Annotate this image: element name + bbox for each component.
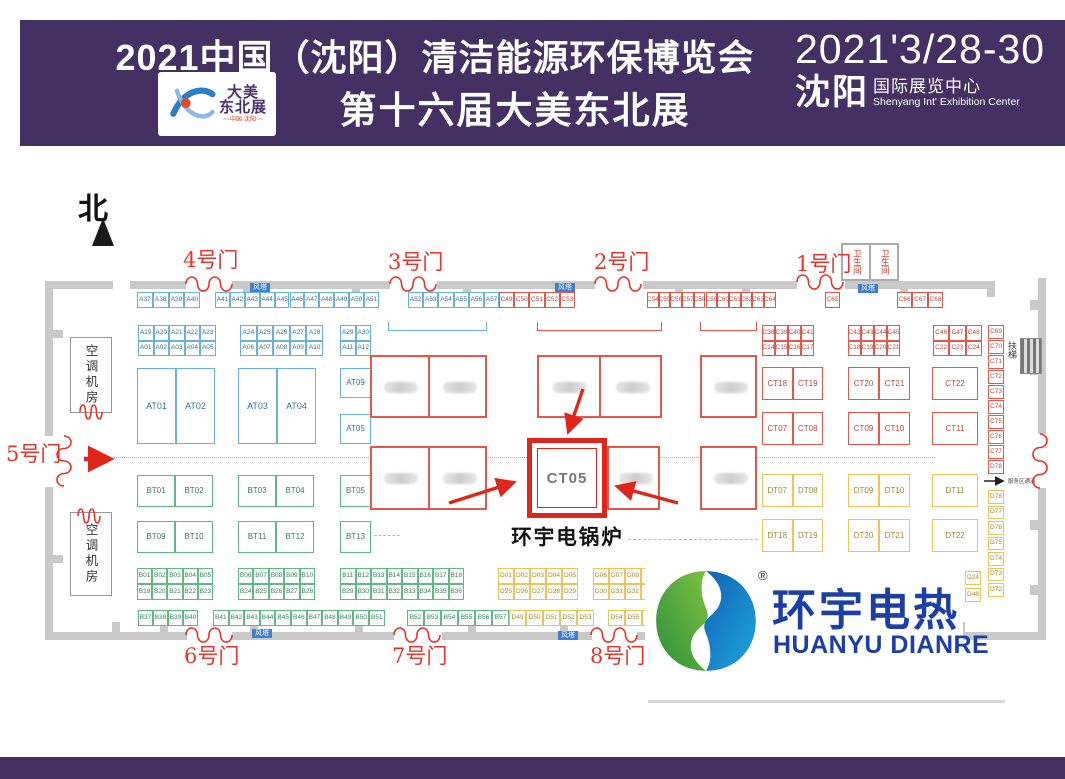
booth-CT11[interactable]: CT11 xyxy=(932,412,978,445)
booth-C19[interactable]: C19 xyxy=(861,341,874,357)
booth-D30[interactable]: D30 xyxy=(593,584,609,600)
booth-C55[interactable]: C55 xyxy=(659,292,671,308)
booth-A43[interactable]: A43 xyxy=(245,292,260,308)
booth-C70[interactable]: C70 xyxy=(988,340,1004,354)
booth-B27[interactable]: B27 xyxy=(284,584,299,600)
booth-A50[interactable]: A50 xyxy=(349,292,364,308)
booth-DT07[interactable]: DT07 xyxy=(762,474,793,507)
booth-B47[interactable]: B47 xyxy=(307,610,323,626)
door-symbol xyxy=(797,274,843,290)
booth-A46[interactable]: A46 xyxy=(290,292,305,308)
booth-D04[interactable]: D04 xyxy=(546,568,562,584)
door-symbol xyxy=(186,627,232,643)
booth-BT01[interactable]: BT01 xyxy=(137,475,175,507)
booth-C50[interactable]: C50 xyxy=(514,292,529,308)
wall xyxy=(130,281,186,289)
door-symbol xyxy=(186,276,232,292)
booth-B13[interactable]: B13 xyxy=(371,568,387,584)
booth-D06[interactable]: D06 xyxy=(593,568,609,584)
booth-DT19[interactable]: DT19 xyxy=(793,519,824,552)
booth-D78[interactable]: D78 xyxy=(988,490,1004,504)
booth-A19[interactable]: A19 xyxy=(138,325,154,341)
booth-CT18[interactable]: CT18 xyxy=(762,367,793,400)
blurred-booth-name xyxy=(714,473,748,484)
booth-D08[interactable]: D08 xyxy=(625,568,641,584)
booth-B34[interactable]: B34 xyxy=(418,584,434,600)
booth-DT11[interactable]: DT11 xyxy=(932,474,978,507)
wall xyxy=(45,281,53,436)
booth-B49[interactable]: B49 xyxy=(338,610,354,626)
booth-C62[interactable]: C62 xyxy=(741,292,753,308)
booth-C18[interactable]: C18 xyxy=(848,341,861,357)
booth-BT13[interactable]: BT13 xyxy=(340,521,371,553)
north-arrow-icon xyxy=(92,218,114,246)
booth-D51[interactable]: D51 xyxy=(543,610,560,626)
booth-A23[interactable]: A23 xyxy=(200,325,216,341)
door-symbol xyxy=(390,276,436,292)
wall xyxy=(987,281,995,297)
booth-B09[interactable]: B09 xyxy=(284,568,299,584)
registered-mark: ® xyxy=(758,568,768,583)
dashed-mark xyxy=(628,539,758,540)
booth-CT21[interactable]: CT21 xyxy=(879,367,910,400)
booth-B22[interactable]: B22 xyxy=(183,584,198,600)
booth-C65[interactable]: C65 xyxy=(825,292,840,308)
booth-AT09[interactable]: AT09 xyxy=(340,368,371,398)
dashed-mark xyxy=(374,535,400,536)
booth-C75[interactable]: C75 xyxy=(988,415,1004,429)
booth-block-censored xyxy=(607,446,660,510)
booth-C17[interactable]: C17 xyxy=(801,341,814,357)
booth-BT04[interactable]: BT04 xyxy=(276,475,314,507)
booth-C64[interactable]: C64 xyxy=(764,292,776,308)
booth-C24[interactable]: C24 xyxy=(966,341,982,357)
blurred-booth-name xyxy=(443,382,477,393)
booth-AT04[interactable]: AT04 xyxy=(277,368,316,444)
booth-BT09[interactable]: BT09 xyxy=(137,521,175,553)
booth-CT20[interactable]: CT20 xyxy=(848,367,879,400)
booth-CT19[interactable]: CT19 xyxy=(793,367,824,400)
door-symbol xyxy=(591,627,637,643)
booth-A57[interactable]: A57 xyxy=(484,292,499,308)
booth-B04[interactable]: B04 xyxy=(183,568,198,584)
blurred-booth-name xyxy=(616,382,650,393)
booth-C42[interactable]: C42 xyxy=(848,325,861,341)
blurred-booth-name xyxy=(553,382,587,393)
booth-D55[interactable]: D55 xyxy=(625,610,642,626)
door-label: 3号门 xyxy=(388,252,443,273)
booth-C72[interactable]: C72 xyxy=(988,370,1004,384)
door-label: 2号门 xyxy=(594,252,649,273)
booth-C47[interactable]: C47 xyxy=(949,325,965,341)
highlight-caption: 环宇电锅炉 xyxy=(500,520,635,550)
booth-C71[interactable]: C71 xyxy=(988,355,1004,369)
booth-B38[interactable]: B38 xyxy=(153,610,168,626)
booth-D27[interactable]: D27 xyxy=(530,584,546,600)
booth-A53[interactable]: A53 xyxy=(423,292,438,308)
booth-BT10[interactable]: BT10 xyxy=(175,521,213,553)
booth-A49[interactable]: A49 xyxy=(334,292,349,308)
brand-name-cn: 环宇电热 xyxy=(772,574,960,638)
booth-B33[interactable]: B33 xyxy=(402,584,418,600)
door-symbol xyxy=(394,627,440,643)
booth-D74[interactable]: D74 xyxy=(988,552,1004,566)
booth-A37[interactable]: A37 xyxy=(137,292,153,308)
booth-A02[interactable]: A02 xyxy=(154,341,170,357)
booth-C23[interactable]: C23 xyxy=(949,341,965,357)
booth-A52[interactable]: A52 xyxy=(408,292,423,308)
booth-D29[interactable]: D29 xyxy=(562,584,578,600)
blurred-booth-name xyxy=(384,473,418,484)
booth-B40[interactable]: B40 xyxy=(183,610,198,626)
booth-A29[interactable]: A29 xyxy=(340,325,356,341)
booth-DT08[interactable]: DT08 xyxy=(793,474,824,507)
booth-A44[interactable]: A44 xyxy=(260,292,275,308)
booth-A10[interactable]: A10 xyxy=(306,341,323,357)
blurred-booth-name xyxy=(714,382,748,393)
booth-C77[interactable]: C77 xyxy=(988,445,1004,459)
booth-C67[interactable]: C67 xyxy=(912,292,927,308)
aisle-dotted-line xyxy=(113,457,935,458)
booth-C49[interactable]: C49 xyxy=(499,292,514,308)
booth-B17[interactable]: B17 xyxy=(433,568,449,584)
booth-B54[interactable]: B54 xyxy=(441,610,458,626)
booth-B36[interactable]: B36 xyxy=(449,584,465,600)
booth-C63[interactable]: C63 xyxy=(752,292,764,308)
booth-AT05[interactable]: AT05 xyxy=(340,414,371,444)
wall xyxy=(45,281,113,289)
door-label: 4号门 xyxy=(183,250,238,271)
booth-C52[interactable]: C52 xyxy=(545,292,560,308)
booth-C54[interactable]: C54 xyxy=(647,292,659,308)
booth-B18[interactable]: B18 xyxy=(449,568,465,584)
booth-block-censored xyxy=(700,355,757,418)
booth-DT10[interactable]: DT10 xyxy=(879,474,910,507)
booth-D02[interactable]: D02 xyxy=(514,568,530,584)
page: 2021中国（沈阳）清洁能源环保博览会 大美 东北展 ~~中国·沈阳~~ 第十六… xyxy=(0,0,1065,779)
booth-C43[interactable]: C43 xyxy=(861,325,874,341)
booth-B19[interactable]: B19 xyxy=(137,584,152,600)
door-label: 5号门 xyxy=(6,444,61,465)
booth-D77[interactable]: D77 xyxy=(988,506,1004,520)
booth-C58[interactable]: C58 xyxy=(694,292,706,308)
highlighted-booth-ct05[interactable]: CT05 xyxy=(527,438,607,518)
door-symbol xyxy=(595,276,641,292)
booth-BT12[interactable]: BT12 xyxy=(276,521,314,553)
booth-B03[interactable]: B03 xyxy=(167,568,182,584)
booth-A28[interactable]: A28 xyxy=(306,325,323,341)
booth-B23[interactable]: B23 xyxy=(198,584,213,600)
booth-C73[interactable]: C73 xyxy=(988,385,1004,399)
door-label: 8号门 xyxy=(590,646,645,667)
booth-D52[interactable]: D52 xyxy=(560,610,577,626)
wind-tower-badge: 风塔 xyxy=(558,631,578,640)
booth-A38[interactable]: A38 xyxy=(153,292,169,308)
booth-BT03[interactable]: BT03 xyxy=(238,475,276,507)
booth-DT22[interactable]: DT22 xyxy=(932,519,978,552)
escalator-icon xyxy=(1020,338,1042,374)
booth-B06[interactable]: B06 xyxy=(238,568,253,584)
door-label: 6号门 xyxy=(184,646,239,667)
booth-C66[interactable]: C66 xyxy=(897,292,912,308)
booth-A39[interactable]: A39 xyxy=(169,292,185,308)
booth-D49[interactable]: D49 xyxy=(509,610,526,626)
wall-stub xyxy=(112,622,120,632)
booth-A41[interactable]: A41 xyxy=(215,292,230,308)
booth-B43[interactable]: B43 xyxy=(244,610,260,626)
booth-A03[interactable]: A03 xyxy=(169,341,185,357)
wall xyxy=(643,281,797,289)
booth-C15[interactable]: C15 xyxy=(775,341,788,357)
ac-room-lower: 空调机房 xyxy=(70,512,112,596)
booth-CT08[interactable]: CT08 xyxy=(793,412,824,445)
booth-B30[interactable]: B30 xyxy=(356,584,372,600)
booth-A42[interactable]: A42 xyxy=(230,292,245,308)
booth-C21[interactable]: C21 xyxy=(887,341,900,357)
booth-A47[interactable]: A47 xyxy=(304,292,319,308)
wall xyxy=(45,632,187,640)
booth-B32[interactable]: B32 xyxy=(387,584,403,600)
booth-C48[interactable]: C48 xyxy=(966,325,982,341)
booth-D31[interactable]: D31 xyxy=(609,584,625,600)
booth-block-censored xyxy=(370,446,487,510)
booth-B14[interactable]: B14 xyxy=(387,568,403,584)
booth-A09[interactable]: A09 xyxy=(290,341,307,357)
booth-C76[interactable]: C76 xyxy=(988,430,1004,444)
booth-D03[interactable]: D03 xyxy=(530,568,546,584)
booth-C40[interactable]: C40 xyxy=(788,325,801,341)
booth-CT09[interactable]: CT09 xyxy=(848,412,879,445)
ac-room-upper: 空调机房 xyxy=(70,337,112,413)
booth-A04[interactable]: A04 xyxy=(185,341,201,357)
toilet-room: 卫生间 xyxy=(869,243,899,281)
booth-A07[interactable]: A07 xyxy=(257,341,274,357)
booth-B35[interactable]: B35 xyxy=(433,584,449,600)
booth-B05[interactable]: B05 xyxy=(198,568,213,584)
booth-B37[interactable]: B37 xyxy=(138,610,153,626)
booth-block-censored xyxy=(537,355,662,418)
booth-D07[interactable]: D07 xyxy=(609,568,625,584)
booth-BT11[interactable]: BT11 xyxy=(238,521,276,553)
highlighted-booth-label: CT05 xyxy=(537,448,597,508)
booth-DT09[interactable]: DT09 xyxy=(848,474,879,507)
wall xyxy=(45,487,53,633)
ac-room-label: 空调机房 xyxy=(82,344,101,406)
booth-D73[interactable]: D73 xyxy=(988,568,1004,582)
door-label: 1号门 xyxy=(796,254,851,275)
booth-C57[interactable]: C57 xyxy=(682,292,694,308)
booth-A51[interactable]: A51 xyxy=(364,292,379,308)
booth-B01[interactable]: B01 xyxy=(137,568,152,584)
booth-D54[interactable]: D54 xyxy=(608,610,625,626)
booth-B21[interactable]: B21 xyxy=(167,584,182,600)
booth-B12[interactable]: B12 xyxy=(356,568,372,584)
booth-C44[interactable]: C44 xyxy=(874,325,887,341)
booth-B57[interactable]: B57 xyxy=(492,610,509,626)
booth-C39[interactable]: C39 xyxy=(775,325,788,341)
booth-B46[interactable]: B46 xyxy=(291,610,307,626)
blurred-booth-name xyxy=(619,473,653,484)
booth-B20[interactable]: B20 xyxy=(152,584,167,600)
booth-A24[interactable]: A24 xyxy=(240,325,257,341)
booth-A45[interactable]: A45 xyxy=(275,292,290,308)
wind-tower-badge: 风塔 xyxy=(252,629,272,638)
brand-panel-edge xyxy=(648,700,1005,703)
wind-tower-badge: 风塔 xyxy=(250,283,270,292)
booth-A40[interactable]: A40 xyxy=(184,292,200,308)
booth-A25[interactable]: A25 xyxy=(257,325,274,341)
booth-B50[interactable]: B50 xyxy=(353,610,369,626)
booth-A54[interactable]: A54 xyxy=(438,292,453,308)
booth-D25[interactable]: D25 xyxy=(498,584,514,600)
booth-C51[interactable]: C51 xyxy=(529,292,544,308)
booth-A08[interactable]: A08 xyxy=(273,341,290,357)
booth-B53[interactable]: B53 xyxy=(424,610,441,626)
wall-stub xyxy=(1030,585,1038,595)
brand-name-en: HUANYU DIANRE xyxy=(773,631,989,660)
booth-A12[interactable]: A12 xyxy=(356,341,372,357)
booth-B25[interactable]: B25 xyxy=(253,584,268,600)
booth-A20[interactable]: A20 xyxy=(154,325,170,341)
booth-B52[interactable]: B52 xyxy=(407,610,424,626)
booth-A27[interactable]: A27 xyxy=(290,325,307,341)
booth-C16[interactable]: C16 xyxy=(788,341,801,357)
door-symbol xyxy=(78,508,100,524)
ac-room-label: 空调机房 xyxy=(82,523,101,585)
footer-bar xyxy=(0,757,1065,779)
booth-B44[interactable]: B44 xyxy=(260,610,276,626)
booth-B45[interactable]: B45 xyxy=(275,610,291,626)
booth-C68[interactable]: C68 xyxy=(928,292,943,308)
booth-A30[interactable]: A30 xyxy=(356,325,372,341)
booth-A22[interactable]: A22 xyxy=(185,325,201,341)
booth-C69[interactable]: C69 xyxy=(988,325,1004,339)
booth-BT05[interactable]: BT05 xyxy=(340,475,371,507)
booth-BT02[interactable]: BT02 xyxy=(175,475,213,507)
booth-D48[interactable]: D48 xyxy=(965,588,981,602)
booth-B31[interactable]: B31 xyxy=(371,584,387,600)
wall-stub xyxy=(1030,300,1038,310)
blurred-booth-name xyxy=(384,382,418,393)
open-booth-outline xyxy=(537,322,662,331)
booth-B08[interactable]: B08 xyxy=(269,568,284,584)
booth-B10[interactable]: B10 xyxy=(300,568,315,584)
booth-AT03[interactable]: AT03 xyxy=(238,368,277,444)
booth-C60[interactable]: C60 xyxy=(717,292,729,308)
booth-D26[interactable]: D26 xyxy=(514,584,530,600)
booth-AT01[interactable]: AT01 xyxy=(137,368,176,444)
escalator-label: 扶梯 xyxy=(1006,341,1019,359)
booth-C53[interactable]: C53 xyxy=(560,292,575,308)
booth-C61[interactable]: C61 xyxy=(729,292,741,308)
booth-C14[interactable]: C14 xyxy=(762,341,775,357)
booth-AT02[interactable]: AT02 xyxy=(176,368,215,444)
wall-stub xyxy=(53,330,63,338)
booth-B02[interactable]: B02 xyxy=(152,568,167,584)
booth-D01[interactable]: D01 xyxy=(498,568,514,584)
booth-C56[interactable]: C56 xyxy=(670,292,682,308)
booth-B11[interactable]: B11 xyxy=(340,568,356,584)
booth-A21[interactable]: A21 xyxy=(169,325,185,341)
wall-stub xyxy=(53,555,63,563)
booth-DT18[interactable]: DT18 xyxy=(762,519,793,552)
booth-C59[interactable]: C59 xyxy=(706,292,718,308)
booth-B28[interactable]: B28 xyxy=(300,584,315,600)
booth-A06[interactable]: A06 xyxy=(240,341,257,357)
booth-block-censored xyxy=(370,355,487,418)
blurred-booth-name xyxy=(443,473,477,484)
booth-C41[interactable]: C41 xyxy=(801,325,814,341)
wind-tower-badge: 风塔 xyxy=(555,283,575,292)
booth-C45[interactable]: C45 xyxy=(887,325,900,341)
booth-B56[interactable]: B56 xyxy=(475,610,492,626)
booth-B16[interactable]: B16 xyxy=(418,568,434,584)
booth-C22[interactable]: C22 xyxy=(933,341,949,357)
booth-A05[interactable]: A05 xyxy=(200,341,216,357)
booth-D28[interactable]: D28 xyxy=(546,584,562,600)
floor-plan: 北 空调机房 空调机房 卫生间 卫生间 扶梯 服务区通道 CT05 环宇电锅炉 xyxy=(0,0,1065,779)
booth-A56[interactable]: A56 xyxy=(469,292,484,308)
wind-tower-badge: 风塔 xyxy=(858,284,878,293)
booth-D24[interactable]: D24 xyxy=(965,571,981,585)
booth-B42[interactable]: B42 xyxy=(229,610,245,626)
open-booth-outline xyxy=(700,322,757,331)
wall-stub xyxy=(1030,520,1038,530)
booth-A26[interactable]: A26 xyxy=(273,325,290,341)
booth-CT07[interactable]: CT07 xyxy=(762,412,793,445)
booth-DT21[interactable]: DT21 xyxy=(879,519,910,552)
booth-C20[interactable]: C20 xyxy=(874,341,887,357)
booth-B15[interactable]: B15 xyxy=(402,568,418,584)
booth-A01[interactable]: A01 xyxy=(138,341,154,357)
booth-D50[interactable]: D50 xyxy=(526,610,543,626)
booth-C46[interactable]: C46 xyxy=(933,325,949,341)
booth-D53[interactable]: D53 xyxy=(577,610,594,626)
booth-A55[interactable]: A55 xyxy=(454,292,469,308)
booth-CT10[interactable]: CT10 xyxy=(879,412,910,445)
booth-D75[interactable]: D75 xyxy=(988,537,1004,551)
booth-D78[interactable]: D78 xyxy=(988,460,1004,474)
open-booth-outline xyxy=(388,322,487,331)
booth-D72[interactable]: D72 xyxy=(988,583,1004,597)
booth-B29[interactable]: B29 xyxy=(340,584,356,600)
booth-B07[interactable]: B07 xyxy=(253,568,268,584)
booth-B51[interactable]: B51 xyxy=(369,610,385,626)
booth-C74[interactable]: C74 xyxy=(988,400,1004,414)
booth-D05[interactable]: D05 xyxy=(562,568,578,584)
booth-C38[interactable]: C38 xyxy=(762,325,775,341)
brand-logo-icon xyxy=(653,568,759,674)
booth-B26[interactable]: B26 xyxy=(269,584,284,600)
booth-B55[interactable]: B55 xyxy=(458,610,475,626)
booth-A11[interactable]: A11 xyxy=(340,341,356,357)
booth-D32[interactable]: D32 xyxy=(625,584,641,600)
booth-B39[interactable]: B39 xyxy=(168,610,183,626)
booth-DT20[interactable]: DT20 xyxy=(848,519,879,552)
booth-B41[interactable]: B41 xyxy=(213,610,229,626)
booth-block-censored xyxy=(700,446,757,510)
door-symbol xyxy=(1032,434,1048,488)
door-symbol xyxy=(80,404,102,420)
booth-CT22[interactable]: CT22 xyxy=(932,367,978,400)
booth-B48[interactable]: B48 xyxy=(322,610,338,626)
booth-A48[interactable]: A48 xyxy=(319,292,334,308)
wall xyxy=(1038,488,1046,640)
booth-D76[interactable]: D76 xyxy=(988,521,1004,535)
door-label: 7号门 xyxy=(392,646,447,667)
booth-B24[interactable]: B24 xyxy=(238,584,253,600)
